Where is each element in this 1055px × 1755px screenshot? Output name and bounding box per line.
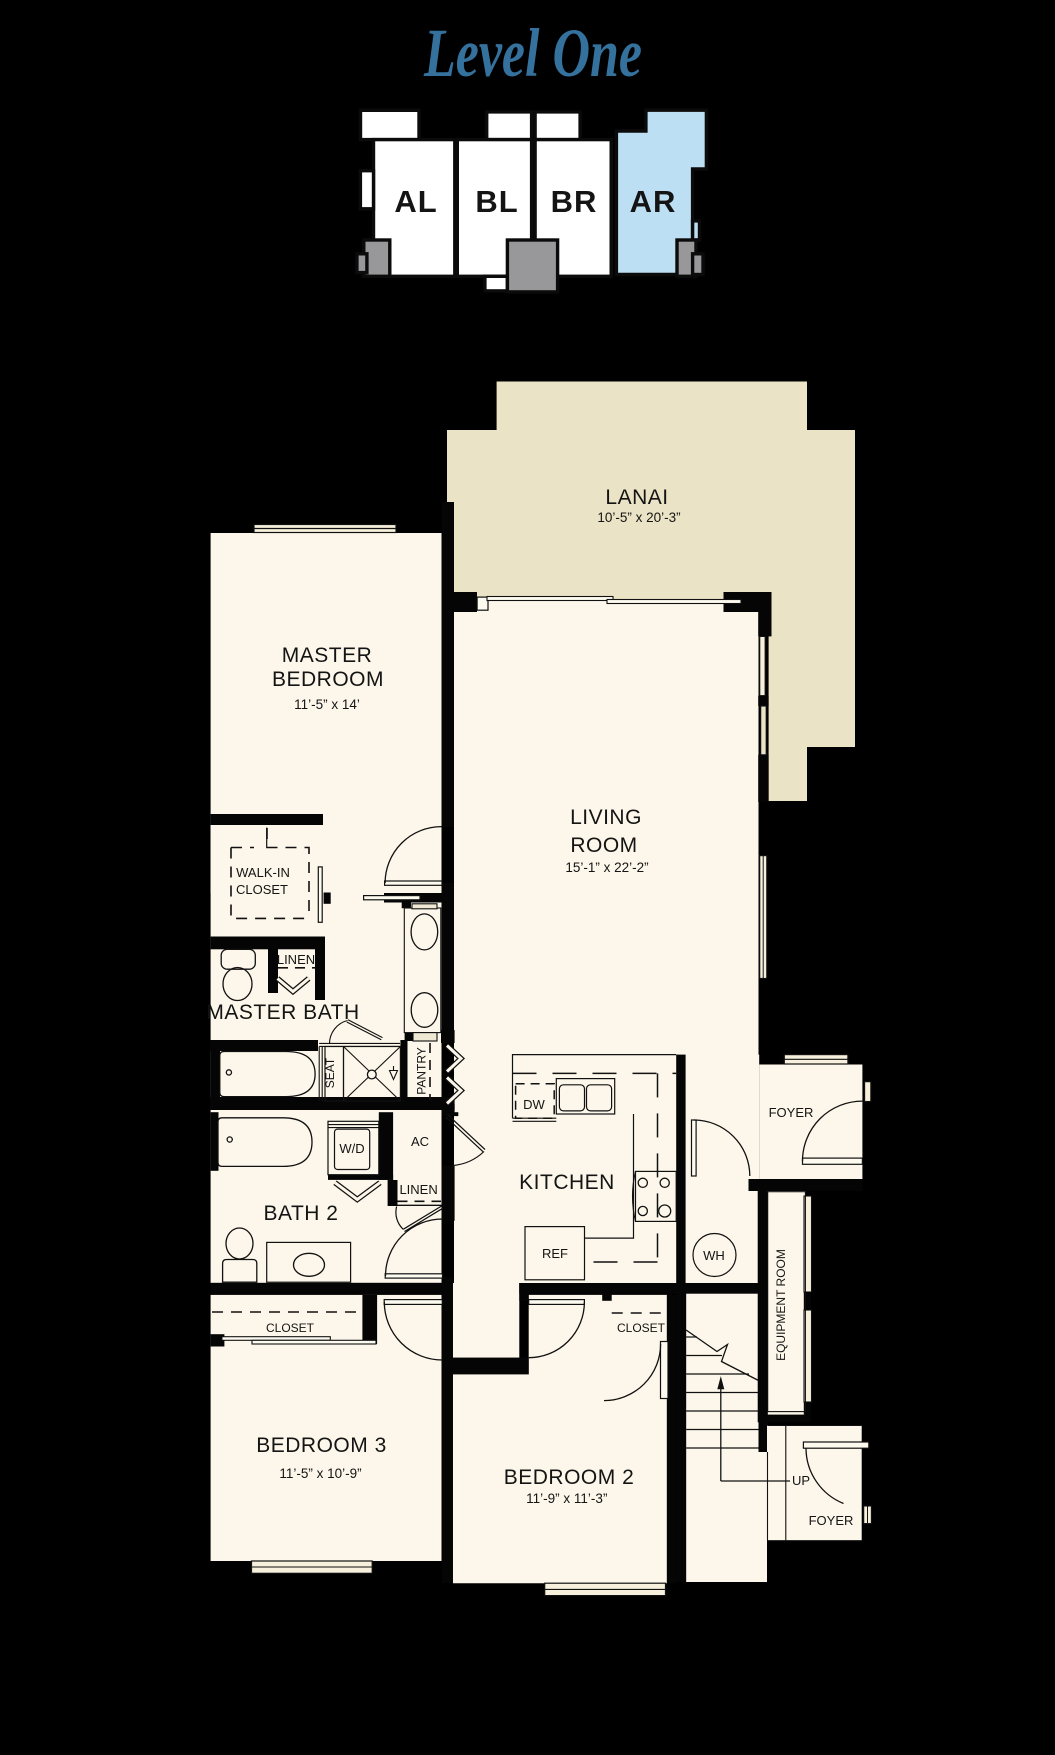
- svg-text:FOYER: FOYER: [809, 1513, 854, 1528]
- svg-text:CLOSET: CLOSET: [236, 882, 288, 897]
- svg-text:WALK-IN: WALK-IN: [236, 865, 290, 880]
- svg-text:REF: REF: [542, 1246, 568, 1261]
- svg-text:AL: AL: [394, 184, 437, 219]
- svg-text:W/D: W/D: [339, 1141, 364, 1156]
- svg-text:10’-5” x 20’-3”: 10’-5” x 20’-3”: [597, 510, 680, 525]
- svg-text:CLOSET: CLOSET: [266, 1321, 315, 1335]
- svg-text:FOYER: FOYER: [769, 1105, 814, 1120]
- svg-text:BATH 2: BATH 2: [264, 1202, 339, 1225]
- svg-text:11’-5” x 14’: 11’-5” x 14’: [294, 697, 360, 712]
- svg-text:WH: WH: [703, 1248, 725, 1263]
- svg-text:MASTER BATH: MASTER BATH: [206, 1001, 359, 1024]
- svg-text:PANTRY: PANTRY: [415, 1047, 429, 1095]
- svg-text:CLOSET: CLOSET: [617, 1321, 666, 1335]
- svg-text:BEDROOM: BEDROOM: [272, 668, 384, 691]
- svg-text:LANAI: LANAI: [605, 486, 668, 509]
- svg-text:AR: AR: [630, 184, 677, 219]
- svg-text:BEDROOM 2: BEDROOM 2: [504, 1466, 635, 1489]
- svg-text:11’-5” x 10’-9”: 11’-5” x 10’-9”: [279, 1466, 361, 1481]
- svg-text:15’-1” x 22’-2”: 15’-1” x 22’-2”: [565, 860, 648, 875]
- svg-text:11’-9” x 11’-3”: 11’-9” x 11’-3”: [526, 1491, 607, 1506]
- svg-text:EQUIPMENT ROOM: EQUIPMENT ROOM: [774, 1249, 788, 1361]
- svg-text:BL: BL: [475, 184, 518, 219]
- svg-text:LINEN: LINEN: [399, 1182, 437, 1197]
- svg-text:AC: AC: [411, 1134, 429, 1149]
- svg-text:ROOM: ROOM: [570, 834, 637, 857]
- svg-text:SEAT: SEAT: [323, 1057, 337, 1088]
- svg-text:Level One: Level One: [423, 16, 642, 92]
- svg-text:BEDROOM 3: BEDROOM 3: [256, 1434, 387, 1457]
- svg-text:MASTER: MASTER: [282, 644, 373, 667]
- svg-text:BR: BR: [551, 184, 598, 219]
- svg-text:LINEN: LINEN: [277, 952, 315, 967]
- svg-text:DW: DW: [523, 1097, 545, 1112]
- svg-text:KITCHEN: KITCHEN: [519, 1171, 615, 1194]
- svg-text:UP: UP: [792, 1473, 810, 1488]
- svg-text:LIVING: LIVING: [570, 806, 642, 829]
